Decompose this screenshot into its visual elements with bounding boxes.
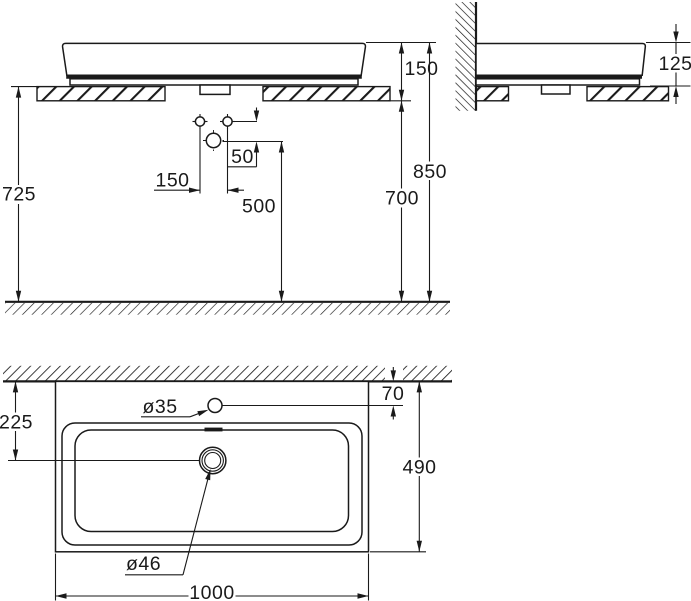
dim-225: 225 — [0, 381, 33, 460]
basin-bowl-front — [63, 43, 366, 75]
dim-70: 70 — [382, 367, 406, 420]
floor-hatch — [5, 303, 450, 315]
dim-label-490: 490 — [402, 457, 436, 479]
dim-label-700: 700 — [385, 188, 419, 210]
dim-490: 490 — [370, 381, 438, 551]
dim-label-500: 500 — [242, 196, 276, 218]
dim-label-70: 70 — [382, 383, 405, 405]
drain-hole-front — [203, 130, 224, 151]
countertop-side-left — [476, 87, 509, 101]
dim-700: 700 — [384, 101, 420, 302]
front-view: 725 150 700 850 — [1, 43, 450, 315]
side-view: 125 — [456, 2, 691, 111]
dim-1000: 1000 — [56, 554, 369, 601]
drain-stub-side — [542, 85, 571, 94]
wall-hatch-top-left — [3, 366, 385, 381]
label-o35: ø35 — [143, 396, 178, 418]
dim-725: 725 — [1, 87, 37, 302]
dim-label-150-spacing: 150 — [155, 170, 189, 192]
basin-bowl-plan — [75, 430, 349, 532]
drain-hole-plan — [200, 447, 226, 473]
drain-stub-front — [200, 85, 230, 94]
technical-drawing-canvas: 725 150 700 850 — [0, 0, 691, 601]
label-o46: ø46 — [126, 553, 161, 575]
basin-bowl-side — [476, 44, 645, 76]
basin-base-plate-front — [70, 79, 358, 85]
dim-label-850: 850 — [413, 161, 447, 183]
wall-hatch-top-right — [403, 366, 452, 381]
countertop-section-right — [263, 87, 390, 101]
washbasin-dimension-drawing: 725 150 700 850 — [0, 0, 691, 601]
wall-hatch-side — [456, 2, 477, 111]
dim-label-225: 225 — [0, 412, 33, 434]
dim-850: 850 — [412, 43, 448, 302]
countertop-side-right — [587, 87, 669, 101]
faucet-hole — [208, 399, 222, 413]
dim-label-725: 725 — [2, 184, 36, 206]
fixing-hole-left — [193, 114, 208, 129]
dim-label-50: 50 — [231, 146, 254, 168]
overflow-slot — [205, 428, 223, 432]
dim-label-125: 125 — [658, 53, 691, 75]
fixing-hole-right — [220, 114, 235, 129]
dim-label-1000: 1000 — [189, 582, 234, 601]
countertop-section-left — [37, 87, 165, 101]
dim-50: 50 — [228, 108, 259, 169]
basin-base-plate-side — [476, 79, 640, 85]
dim-label-150-height: 150 — [404, 58, 438, 80]
top-view: ø35 ø46 225 — [0, 366, 452, 601]
